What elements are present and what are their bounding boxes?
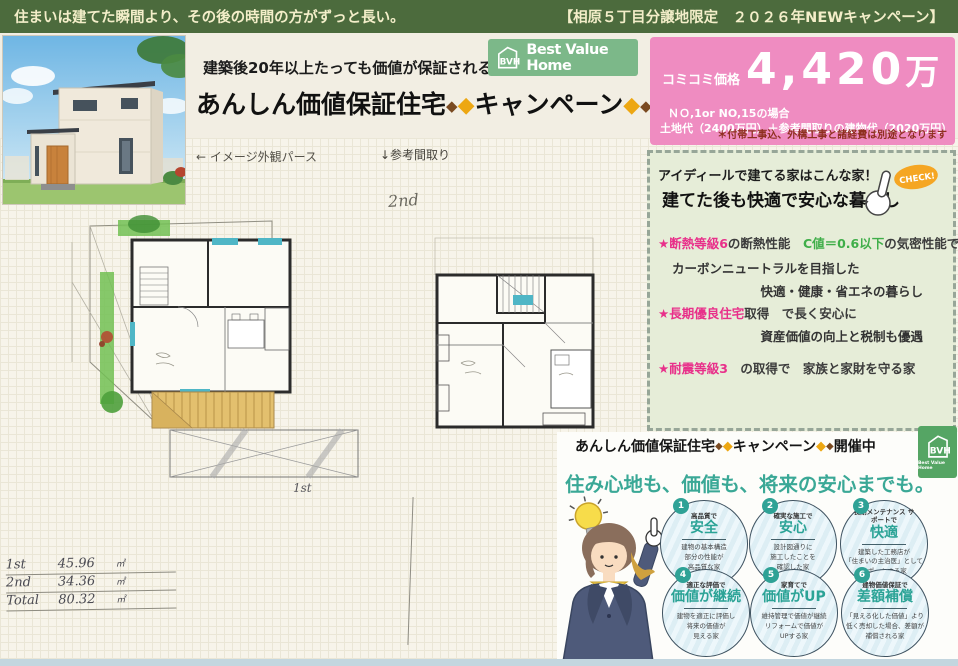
circle-divider [684, 608, 728, 609]
feature-text: の断熱性能 [728, 236, 791, 251]
circle-divider [862, 544, 906, 545]
diamond-brown-icon: ◆ [826, 441, 834, 452]
circle-word: 安全 [661, 520, 747, 537]
desc-line: 建物を適正に評価し [663, 612, 749, 622]
price-note: ＊付帯工事込、外構工事と諸経費は別途となります [717, 126, 947, 141]
feature-text: 取得 で長く安心に [744, 306, 857, 321]
floor-plan-1st: 1st [60, 212, 360, 497]
feature-item-2-sub1: 資産価値の向上と税制も優遇 [760, 326, 923, 345]
circle-word: 快適 [841, 525, 927, 542]
price-box: コミコミ価格 4,420 万 ＮＯ,1or NO,15の場合 土地代（2400万… [650, 37, 955, 145]
bottom-strip [0, 659, 958, 666]
desc-line: 建築した工務店が [841, 548, 927, 558]
diamond-brown-icon: ◆ [446, 97, 458, 115]
price-line: コミコミ価格 4,420 万 [662, 45, 939, 94]
area-row-total: Total 80.32 ㎡ [6, 591, 176, 612]
top-banner: 住まいは建てた瞬間より、その後の時間の方がずっと長い。 【相原５丁目分譲地限定 … [0, 0, 958, 33]
features-panel: アイディールで建てる家はこんな家！ 建てた後も快適で安心な暮らし CHECK! … [647, 150, 956, 431]
handwritten-1st-mark: 1st [293, 481, 312, 495]
house-illustration [3, 36, 185, 204]
circle-desc: 建物を適正に評価し 将来の価値が 見える家 [663, 612, 749, 641]
circle-word: 差額補償 [842, 589, 928, 606]
price-case: ＮＯ,1or NO,15の場合 [668, 105, 789, 121]
desc-line: 「見える化した価値」より [842, 612, 928, 622]
diamond-gold-icon: ◆ [623, 93, 640, 118]
main-title-campaign-text: キャンペーン [474, 90, 623, 119]
desc-line: 施工したことを [750, 553, 836, 563]
circle-divider [863, 608, 907, 609]
campaign-panel: あんしん価値保証住宅◆◆キャンペーン◆◆開催中 住み心地も、価値も、将来の安心ま… [557, 432, 958, 659]
circle-word: 価値が継続 [663, 589, 749, 606]
circle-desc: 維持管理で価値が継続 リフォームで価値が UPする家 [751, 612, 837, 641]
desc-line: 低く売却した場合、差額が [842, 622, 928, 632]
campaign-heading-text3: 開催中 [834, 439, 876, 455]
exterior-perspective-image [2, 35, 186, 205]
circle-number-badge: 1 [673, 498, 689, 514]
area-value: 80.32 [58, 592, 116, 608]
circle-number-badge: 4 [675, 567, 691, 583]
price-unit: 万 [905, 45, 939, 94]
advisor-illustration [557, 512, 675, 659]
logo-name-small: Best Value Home [918, 461, 957, 471]
circle-number-badge: 6 [854, 567, 870, 583]
star-icon: ★ [658, 361, 669, 376]
main-title: あんしん価値保証住宅◆◆キャンペーン◆◆ [196, 85, 652, 121]
star-icon: ★ [658, 306, 669, 321]
handwritten-2nd-mark: 2nd [387, 190, 419, 211]
campaign-heading-text: あんしん価値保証住宅 [575, 439, 715, 455]
check-hand-icon: CHECK! [856, 161, 942, 219]
desc-line: 設計図通りに [750, 543, 836, 553]
desc-line: 補償される家 [842, 632, 928, 642]
circle-divider [682, 539, 726, 540]
value-circle-6: 6 建物価値保証で 差額補償 「見える化した価値」より 低く売却した場合、差額が… [841, 569, 929, 657]
area-name: 1st [6, 557, 58, 573]
campaign-tagline: 住み心地も、価値も、将来の安心までも。 [565, 468, 934, 497]
diamond-gold-icon: ◆ [816, 439, 826, 454]
flyer-page: 住まいは建てた瞬間より、その後の時間の方がずっと長い。 【相原５丁目分譲地限定 … [0, 0, 958, 666]
feature-item-1-sub2: 快適・健康・省エネの暮らし [760, 281, 923, 300]
circle-desc: 「見える化した価値」より 低く売却した場合、差額が 補償される家 [842, 612, 928, 641]
feature-item-2: ★長期優良住宅取得 で長く安心に [658, 303, 857, 322]
feature-item-1: ★断熱等級6の断熱性能 C値＝0.6以下の気密性能で [658, 233, 958, 252]
campaign-heading: あんしん価値保証住宅◆◆キャンペーン◆◆開催中 [575, 436, 876, 456]
bvh-house-icon: BVH [924, 434, 952, 460]
area-table: 1st 45.96 ㎡ 2nd 34.36 ㎡ Total 80.32 ㎡ [6, 555, 177, 612]
desc-line: 見える家 [663, 632, 749, 642]
logo-name: Best Value Home [526, 42, 632, 74]
price-label: コミコミ価格 [662, 69, 740, 88]
desc-line: 維持管理で価値が継続 [751, 612, 837, 622]
svg-text:BVH: BVH [929, 446, 950, 456]
area-name: Total [6, 593, 58, 609]
area-name: 2nd [6, 575, 58, 591]
desc-line: 部分の性能が [661, 553, 747, 563]
floor-plan-label: ↓参考間取り [380, 146, 450, 163]
circle-number-badge: 3 [853, 498, 869, 514]
desc-line: リフォームで価値が [751, 622, 837, 632]
area-unit: ㎡ [116, 556, 125, 569]
banner-campaign: 【相原５丁目分譲地限定 ２０２６年NEWキャンペーン】 [559, 6, 944, 27]
value-circle-5: 5 家育てで 価値がUP 維持管理で価値が継続 リフォームで価値が UPする家 [750, 569, 838, 657]
circle-divider [772, 608, 816, 609]
circle-divider [771, 539, 815, 540]
bvh-house-icon: BVH [494, 43, 521, 73]
feature-item-3: ★耐震等級3 の取得で 家族と家財を守る家 [658, 358, 915, 377]
feature-text: の気密性能で [884, 236, 958, 251]
area-unit: ㎡ [116, 592, 125, 605]
circle-number-badge: 2 [762, 498, 778, 514]
main-title-text: あんしん価値保証住宅 [196, 90, 446, 119]
floor-plan-2nd [425, 235, 615, 447]
svg-text:BVH: BVH [500, 57, 521, 67]
value-circle-4: 4 適正な評価で 価値が継続 建物を適正に評価し 将来の価値が 見える家 [662, 569, 750, 657]
feature-item-1-sub1: カーボンニュートラルを目指した [672, 258, 860, 277]
feature-highlight: 耐震等級3 [669, 361, 728, 376]
feature-highlight: 断熱等級6 [669, 236, 728, 251]
desc-line: 「住まいの主治医」として [841, 557, 927, 567]
area-value: 45.96 [58, 556, 116, 572]
circle-word: 価値がUP [751, 589, 837, 606]
desc-line: UPする家 [751, 632, 837, 642]
area-value: 34.36 [58, 574, 116, 590]
area-unit: ㎡ [116, 574, 125, 587]
campaign-heading-text2: キャンペーン [733, 439, 816, 455]
star-icon: ★ [658, 236, 669, 251]
feature-highlight: 長期優良住宅 [669, 306, 744, 321]
best-value-home-logo: BVH Best Value Home [488, 39, 638, 76]
feature-highlight-green: C値＝0.6以下 [790, 236, 884, 251]
feature-text: の取得で 家族と家財を守る家 [728, 361, 916, 376]
features-intro: アイディールで建てる家はこんな家！ [658, 165, 877, 184]
price-value: 4,420 [746, 48, 905, 92]
desc-line: 将来の価値が [663, 622, 749, 632]
desc-line: 建物の基本構造 [661, 543, 747, 553]
diamond-brown-icon: ◆ [715, 441, 723, 452]
circle-number-badge: 5 [763, 567, 779, 583]
diamond-gold-icon: ◆ [723, 439, 733, 454]
best-value-home-logo-small: BVH Best Value Home [918, 426, 957, 478]
banner-slogan: 住まいは建てた瞬間より、その後の時間の方がずっと長い。 [14, 6, 405, 27]
exterior-label: ← イメージ外観パース [196, 148, 317, 165]
diamond-gold-icon: ◆ [458, 93, 475, 118]
circle-word: 安心 [750, 520, 836, 537]
